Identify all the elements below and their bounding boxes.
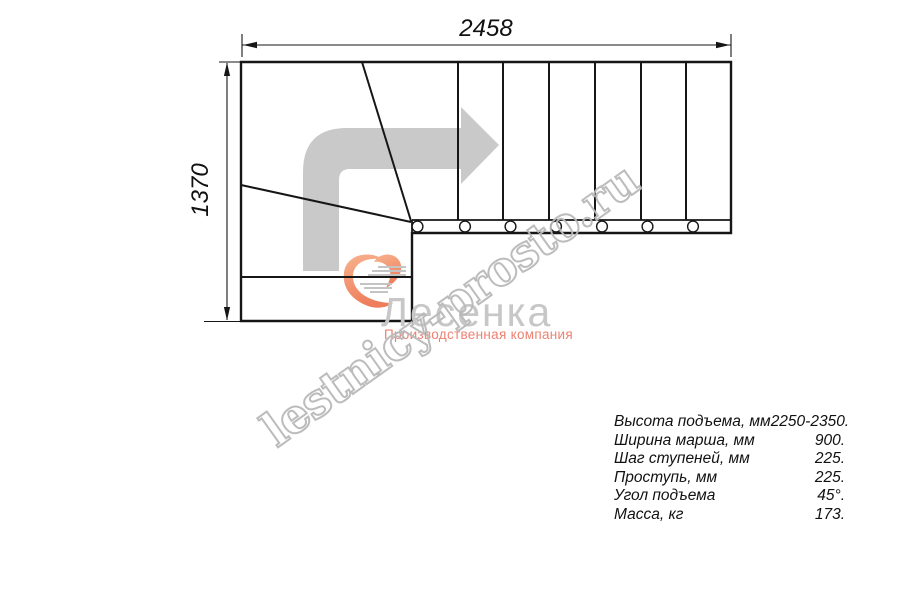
spec-value: 45°. [817, 487, 845, 506]
spec-value: 225. [815, 469, 845, 488]
spec-row: Проступь, мм 225. [614, 469, 845, 488]
spec-value: 173. [815, 506, 845, 525]
spec-label: Ширина марша, мм [614, 432, 755, 451]
dimension-label-width: 2458 [242, 15, 730, 43]
spec-row: Угол подъема 45°. [614, 487, 845, 506]
spec-row: Высота подъема, мм 2250-2350. [614, 413, 845, 432]
spec-value: 900. [815, 432, 845, 451]
spec-label: Угол подъема [614, 487, 715, 506]
spec-value: 2250-2350. [771, 413, 849, 432]
spec-row: Масса, кг 173. [614, 506, 845, 525]
specs-table: Высота подъема, мм 2250-2350. Ширина мар… [614, 413, 845, 524]
spec-label: Высота подъема, мм [614, 413, 771, 432]
spec-value: 225. [815, 450, 845, 469]
spec-label: Шаг ступеней, мм [614, 450, 750, 469]
spec-label: Проступь, мм [614, 469, 717, 488]
spec-label: Масса, кг [614, 506, 683, 525]
dimension-label-height: 1370 [188, 162, 214, 218]
spec-row: Шаг ступеней, мм 225. [614, 450, 845, 469]
stair-drawing-page: 2458 1370 Лесенка Производственная компа… [0, 0, 900, 600]
spec-row: Ширина марша, мм 900. [614, 432, 845, 451]
